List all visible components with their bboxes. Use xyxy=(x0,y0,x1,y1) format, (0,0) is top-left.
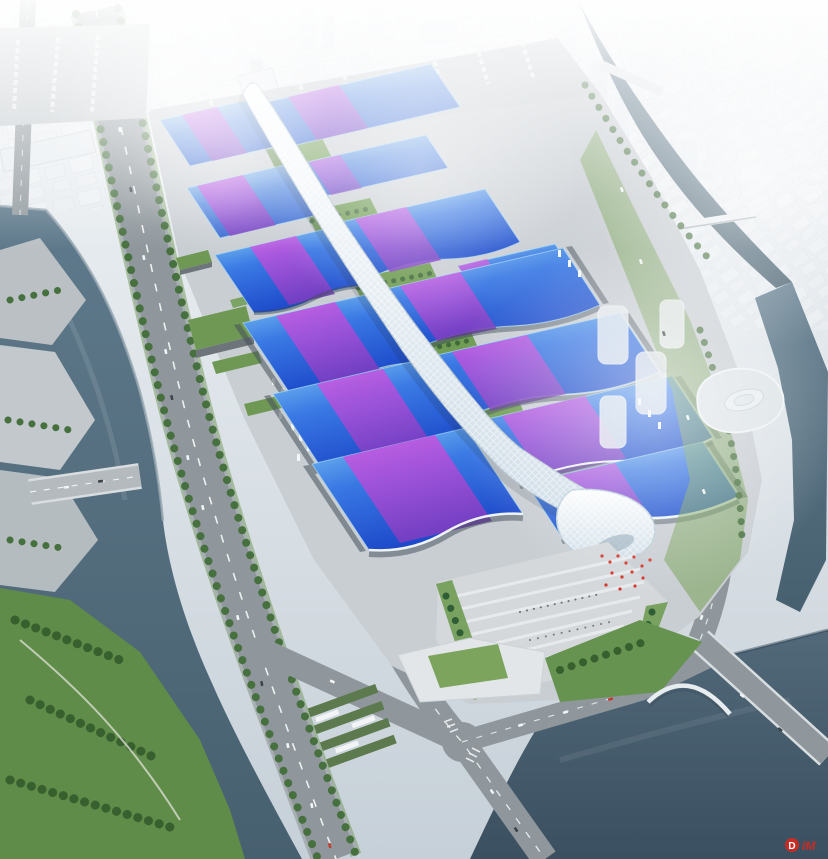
watermark-text: IM xyxy=(802,839,816,853)
fog-patch xyxy=(130,40,350,260)
truck xyxy=(297,454,300,461)
aerial-rendering-canvas: D IM xyxy=(0,0,828,859)
river-bridge xyxy=(30,476,140,492)
watermark-badge-letter: D xyxy=(788,841,795,852)
aerial-rendering: D IM xyxy=(0,0,828,859)
